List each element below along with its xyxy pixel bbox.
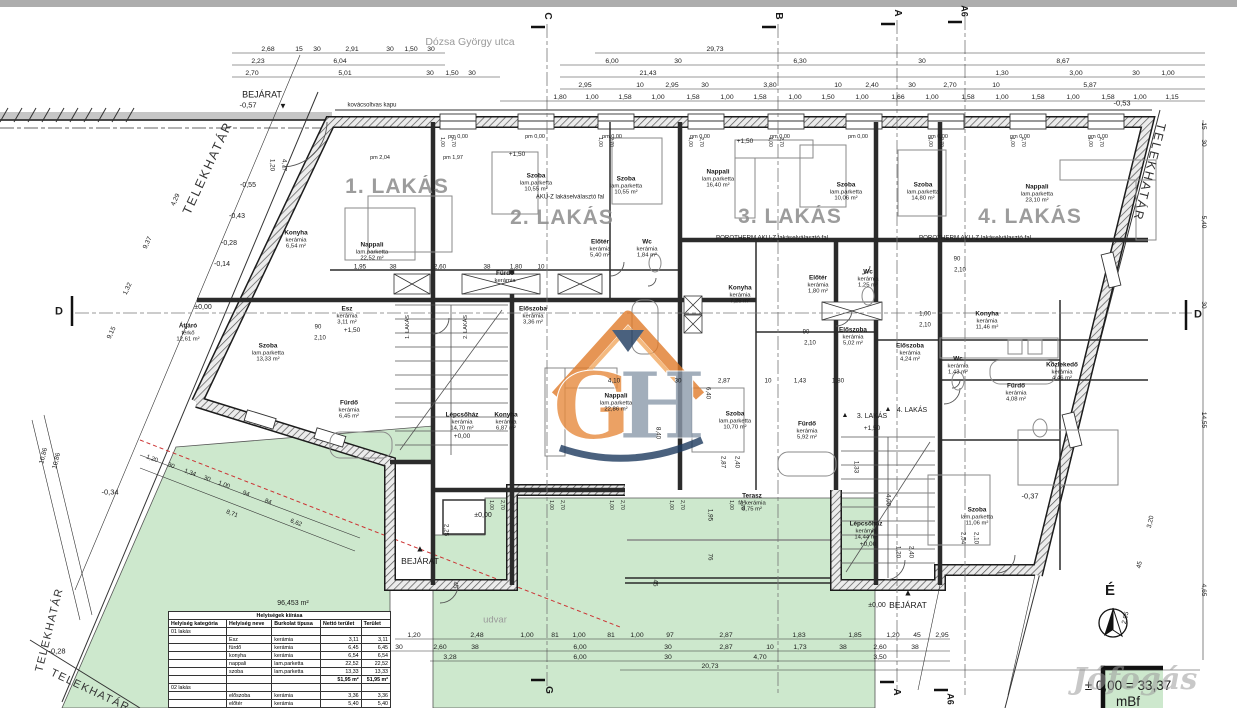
table-cell: kerámia [272,636,321,644]
table-cell: 5,40 [321,700,362,708]
table-cell [169,636,227,644]
table-cell: Esz [227,636,272,644]
table-cell: 3,36 [361,692,390,700]
table-row: előszobakerámia3,363,36 [169,692,391,700]
watermark-logo-icon: G H [553,316,706,460]
room-schedule-table: Helyiségek kiírása Helyiség kategóriaHel… [168,611,391,708]
table-row: nappalilam.parketta22,5222,52 [169,660,391,668]
table-cell: 3,11 [321,636,362,644]
table-row: Eszkerámia3,113,11 [169,636,391,644]
table-cell [321,684,362,692]
table-row: fürdőkerámia6,456,45 [169,644,391,652]
table-cell [227,628,272,636]
table-cell: 6,45 [361,644,390,652]
table-cell: lam.parketta [272,668,321,676]
table-cell [169,644,227,652]
table-row: 02 lakás [169,684,391,692]
table-cell: kerámia [272,700,321,708]
table-cell: kerámia [272,692,321,700]
table-cell [169,652,227,660]
table-cell [169,692,227,700]
table-cell: kerámia [272,644,321,652]
table-column-header: Burkolat típusa [272,620,321,628]
apartment-title: 4. LAKÁS [978,205,1082,229]
table-cell: 51,95 m² [321,676,362,684]
table-cell: 6,54 [361,652,390,660]
table-cell: 51,95 m² [361,676,390,684]
table-cell [272,628,321,636]
floor-plan-page: G H Dózsa György utcaBEJÁRAT▼-0,57kovács… [0,0,1237,708]
table-column-header: Helyiség kategória [169,620,227,628]
table-cell: 01 lakás [169,628,227,636]
table-header-row: Helyiség kategóriaHelyiség neveBurkolat … [169,620,391,628]
table-row: 01 lakás [169,628,391,636]
table-cell [169,676,227,684]
table-cell [361,628,390,636]
table-cell: 6,54 [321,652,362,660]
table-row: szobalam.parketta13,3313,33 [169,668,391,676]
table-cell: 22,52 [321,660,362,668]
furniture [330,138,1156,545]
table-title: Helyiségek kiírása [169,612,391,620]
table-row: 51,95 m²51,95 m² [169,676,391,684]
table-cell: 3,36 [321,692,362,700]
north-compass-icon [1099,608,1127,637]
table-cell: 02 lakás [169,684,227,692]
table-cell: 22,52 [361,660,390,668]
table-cell [169,668,227,676]
table-cell [361,684,390,692]
table-column-header: Nettó terület [321,620,362,628]
table-cell [272,676,321,684]
table-row: előtérkerámia5,405,40 [169,700,391,708]
table-cell: kerámia [272,652,321,660]
apartment-title: 3. LAKÁS [738,205,842,229]
table-cell [169,660,227,668]
table-cell [272,684,321,692]
floor-plan-drawing: G H [0,0,1237,708]
table-cell [321,628,362,636]
table-cell: fürdő [227,644,272,652]
table-cell: 6,45 [321,644,362,652]
table-cell: 5,40 [361,700,390,708]
table-cell: szoba [227,668,272,676]
table-cell: nappali [227,660,272,668]
table-cell: 13,33 [361,668,390,676]
table-row: konyhakerámia6,546,54 [169,652,391,660]
table-cell: konyha [227,652,272,660]
table-cell [169,700,227,708]
table-cell: 13,33 [321,668,362,676]
table-cell: lam.parketta [272,660,321,668]
table-cell [227,676,272,684]
table-column-header: Helyiség neve [227,620,272,628]
table-column-header: Terület [361,620,390,628]
apartment-title: 2. LAKÁS [510,206,614,230]
apartment-title: 1. LAKÁS [345,175,449,199]
table-cell [227,684,272,692]
table-cell: előtér [227,700,272,708]
table-cell: előszoba [227,692,272,700]
table-cell: 3,11 [361,636,390,644]
